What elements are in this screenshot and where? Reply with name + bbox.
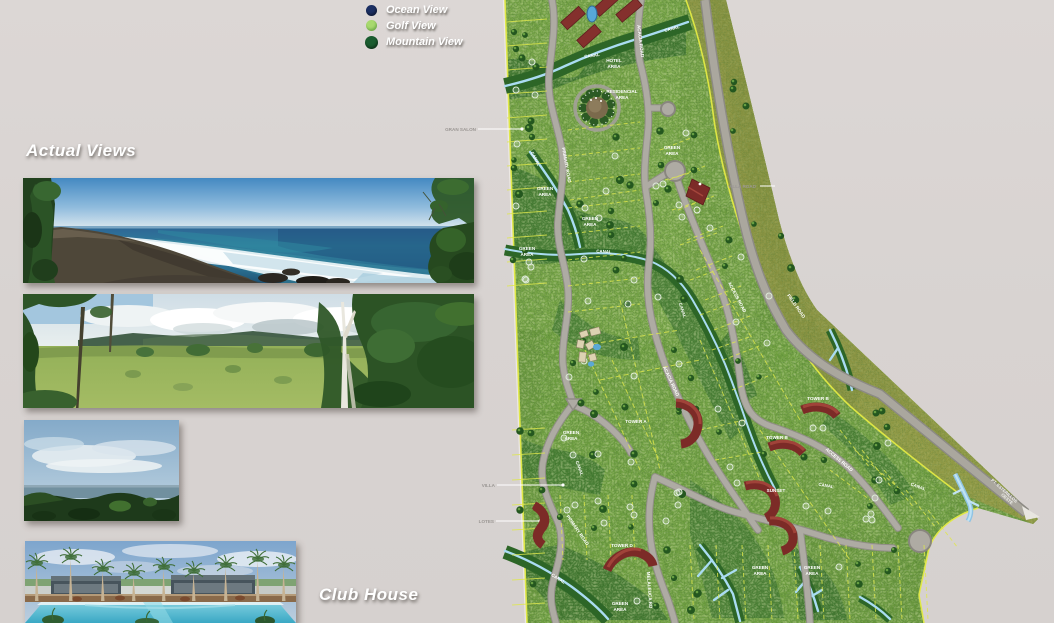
svg-text:GREEN: GREEN [519,246,536,251]
svg-text:RESIDENCIAL: RESIDENCIAL [606,89,637,94]
svg-text:GRAN SALON: GRAN SALON [445,127,477,132]
svg-text:GREEN: GREEN [664,145,681,150]
svg-text:SUNSET: SUNSET [767,488,786,493]
svg-text:AREA: AREA [538,192,552,197]
svg-text:AREA: AREA [613,607,627,612]
svg-text:GREEN: GREEN [752,565,769,570]
svg-text:GREEN: GREEN [537,186,554,191]
svg-text:AREA: AREA [583,222,597,227]
svg-text:VILLA: VILLA [482,483,496,488]
svg-text:AREA: AREA [564,436,578,441]
svg-text:TOWER B: TOWER B [766,435,788,440]
svg-text:GREEN: GREEN [804,565,821,570]
svg-text:VILLA ROAD: VILLA ROAD [728,184,757,189]
svg-text:AREA: AREA [665,151,679,156]
svg-text:TOWER B: TOWER B [807,396,829,401]
svg-text:GREEN: GREEN [582,216,599,221]
svg-text:GREEN: GREEN [612,601,629,606]
svg-text:GREEN: GREEN [563,430,580,435]
svg-text:AREA: AREA [615,95,629,100]
svg-text:AREA: AREA [805,571,819,576]
svg-text:TOWER D: TOWER D [611,543,633,548]
svg-text:AREA: AREA [520,252,534,257]
svg-text:TOWER A: TOWER A [625,419,647,424]
svg-text:HOTEL: HOTEL [606,58,622,63]
svg-text:AREA: AREA [607,64,621,69]
svg-text:LOTES: LOTES [479,519,494,524]
svg-text:AREA: AREA [753,571,767,576]
svg-text:CANAL: CANAL [596,249,612,255]
